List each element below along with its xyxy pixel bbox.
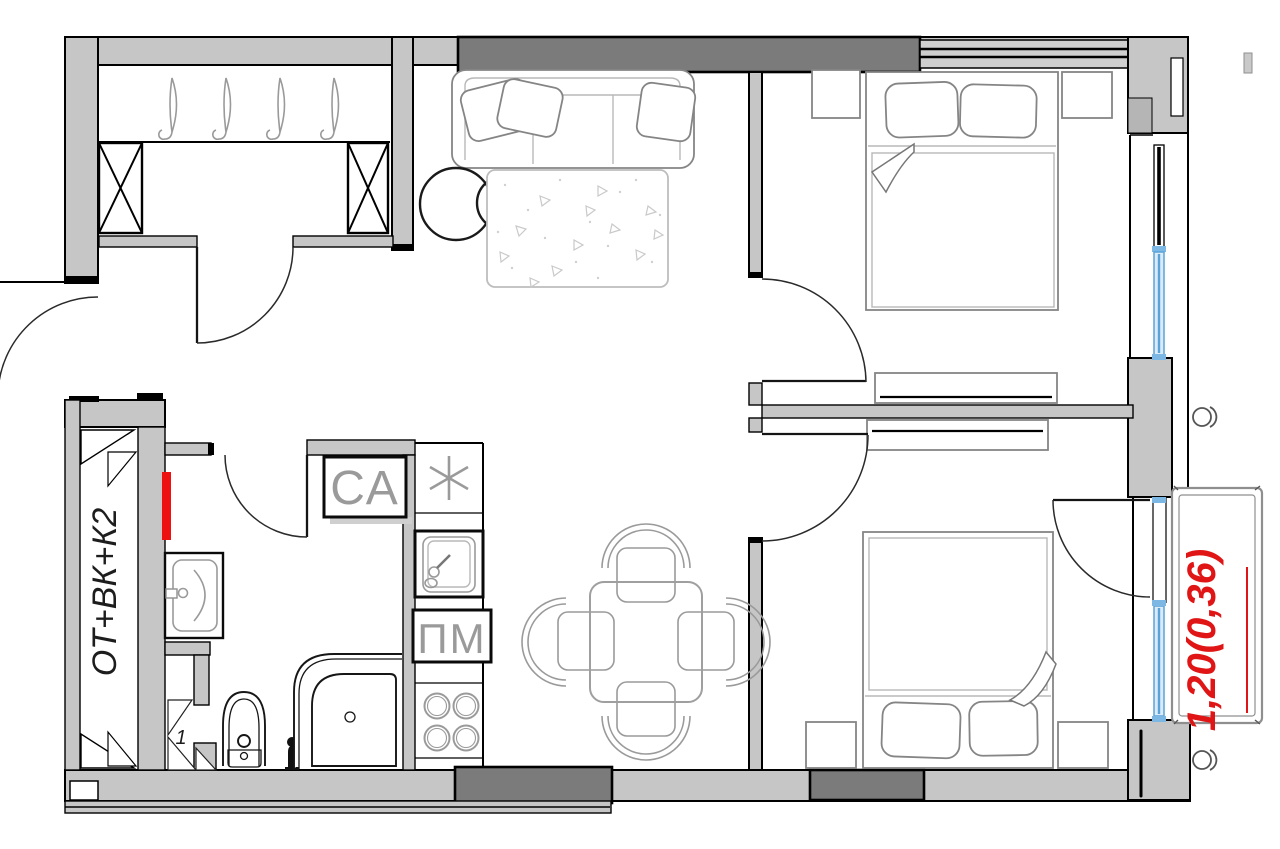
central-wall-cap-2 [749, 538, 762, 543]
sofa-pillow [636, 82, 697, 143]
bathroom-sink [165, 553, 223, 638]
bedroom-partition-wall [762, 405, 1133, 418]
washing-machine-box: СА [324, 457, 412, 524]
door-jamb-upper [749, 383, 762, 405]
hanger-icon [267, 78, 285, 139]
bathroom-stub-cap [208, 443, 214, 455]
dishwasher-box: ПМ [413, 610, 491, 662]
sofa [452, 70, 696, 168]
shaft-bevel-bottom-2 [108, 732, 136, 766]
bathroom-top-wall [307, 440, 415, 455]
closet-door [197, 247, 293, 343]
hanger-icon [213, 78, 231, 139]
kitchen-sink [415, 531, 483, 597]
drainpipe-icon [1193, 750, 1216, 770]
window-top-bedroom [1152, 145, 1166, 360]
heated-towel-rail [162, 472, 171, 540]
door-jamb-lower [749, 418, 762, 432]
bed-pillow [960, 84, 1037, 138]
shower [294, 654, 402, 769]
neighbor-wall-stub [1244, 53, 1252, 73]
riser-shaft-label: ОТ+ВК+К2 [86, 508, 124, 677]
cabinet-crossed-left [99, 143, 142, 233]
washing-machine-label: СА [330, 462, 400, 515]
central-wall-cap-1 [749, 272, 762, 277]
hallway-closet [0, 78, 390, 392]
dining-table [590, 582, 702, 702]
top-right-corner-pier [1128, 37, 1188, 133]
left-wall [65, 37, 98, 283]
floor-plan-page: ОТ+ВК+К2 [0, 0, 1280, 849]
window-bottom-bedroom [1152, 600, 1166, 722]
dining-chair-bottom [602, 682, 690, 760]
floor-plan-canvas: ОТ+ВК+К2 [0, 0, 1280, 849]
dishwasher-label: ПМ [417, 615, 486, 662]
bed-pillow [885, 81, 959, 137]
closet-divider-cap [392, 244, 413, 250]
bed-double [866, 72, 1058, 310]
central-wall-upper [749, 72, 762, 277]
nightstand [1062, 72, 1112, 118]
shaft-bevel-top-2 [108, 452, 136, 486]
coffee-table-large [420, 168, 492, 240]
bed-pillow [881, 702, 961, 759]
dresser [875, 373, 1057, 403]
left-wall-cap [65, 276, 98, 283]
bedroom-bottom-door [762, 434, 868, 541]
closet-bottom-wall-right [293, 236, 393, 247]
bedroom-top-door [762, 279, 866, 382]
dining-chair-top [602, 524, 690, 602]
stove [425, 694, 479, 751]
dining-set [522, 524, 770, 760]
balcony-door [1053, 497, 1166, 603]
toilet [223, 692, 265, 767]
bedroom-bottom [762, 420, 1108, 768]
dresser [867, 420, 1048, 450]
closet-divider-wall [392, 37, 413, 250]
bedroom-top [762, 70, 1112, 403]
central-wall-lower [749, 538, 762, 770]
drainpipe-icon [1193, 407, 1216, 427]
bottom-wall [65, 767, 1190, 813]
balcony: 1,20(0,36) [1172, 407, 1262, 770]
bed-pillow [969, 701, 1038, 756]
duct-number-label: 1 [175, 727, 186, 749]
top-wall-monolith [458, 37, 920, 72]
fridge-snowflake-icon [430, 456, 468, 500]
top-window-strip [920, 40, 1130, 68]
hanger-icon [321, 78, 339, 139]
rug [487, 170, 668, 287]
closet-bottom-wall-left [99, 236, 197, 247]
bed-double [863, 532, 1056, 768]
nightstand [1058, 722, 1108, 768]
bathroom-door [225, 455, 307, 537]
nightstand [812, 70, 860, 118]
cabinet-crossed-right [348, 143, 388, 233]
dining-chair-left [522, 598, 614, 686]
balcony-dimension-label: 1,20(0,36) [1180, 549, 1224, 731]
hanger-icon [159, 78, 177, 139]
entry-door-arc [0, 297, 98, 392]
nightstand [806, 722, 856, 768]
bathroom-top-wall-stub [165, 443, 211, 455]
window-pier [1128, 358, 1172, 497]
